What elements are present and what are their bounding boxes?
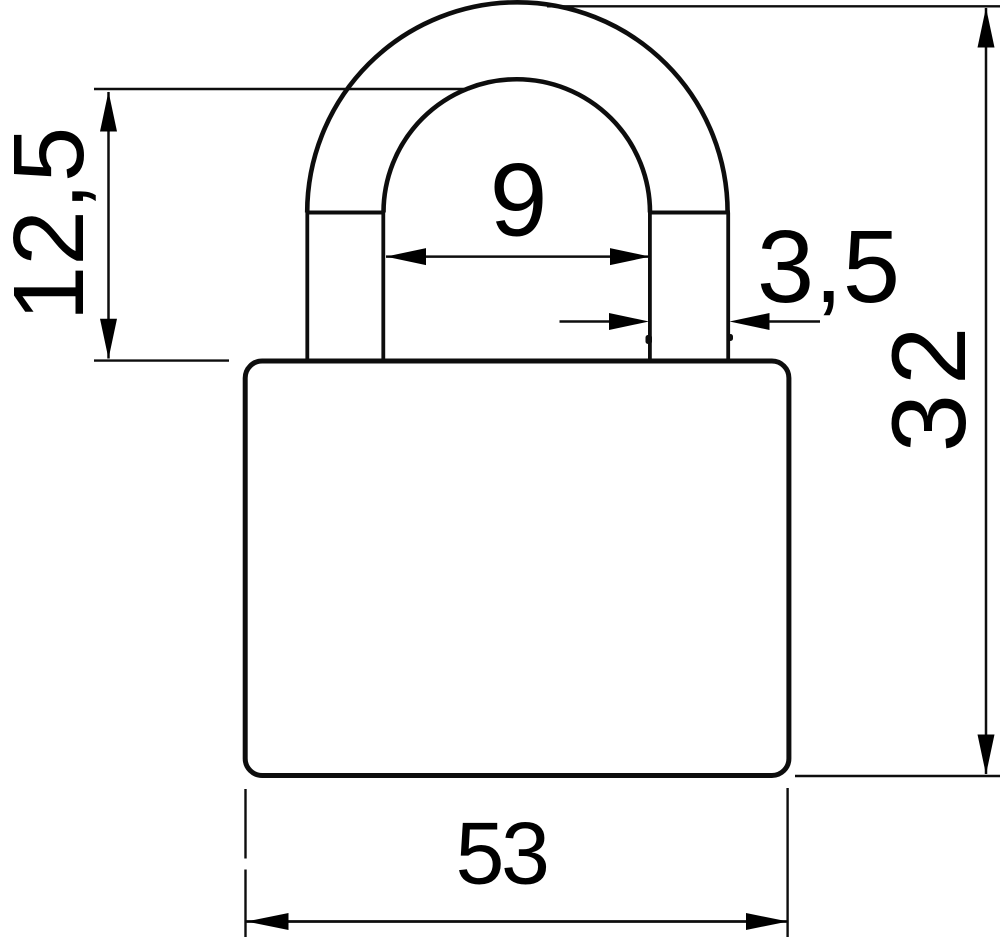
svg-text:12,5: 12,5 (0, 127, 105, 322)
svg-text:3,5: 3,5 (757, 209, 900, 324)
svg-text:53: 53 (456, 804, 547, 903)
svg-text:9: 9 (490, 143, 548, 259)
svg-text:32: 32 (871, 318, 988, 453)
